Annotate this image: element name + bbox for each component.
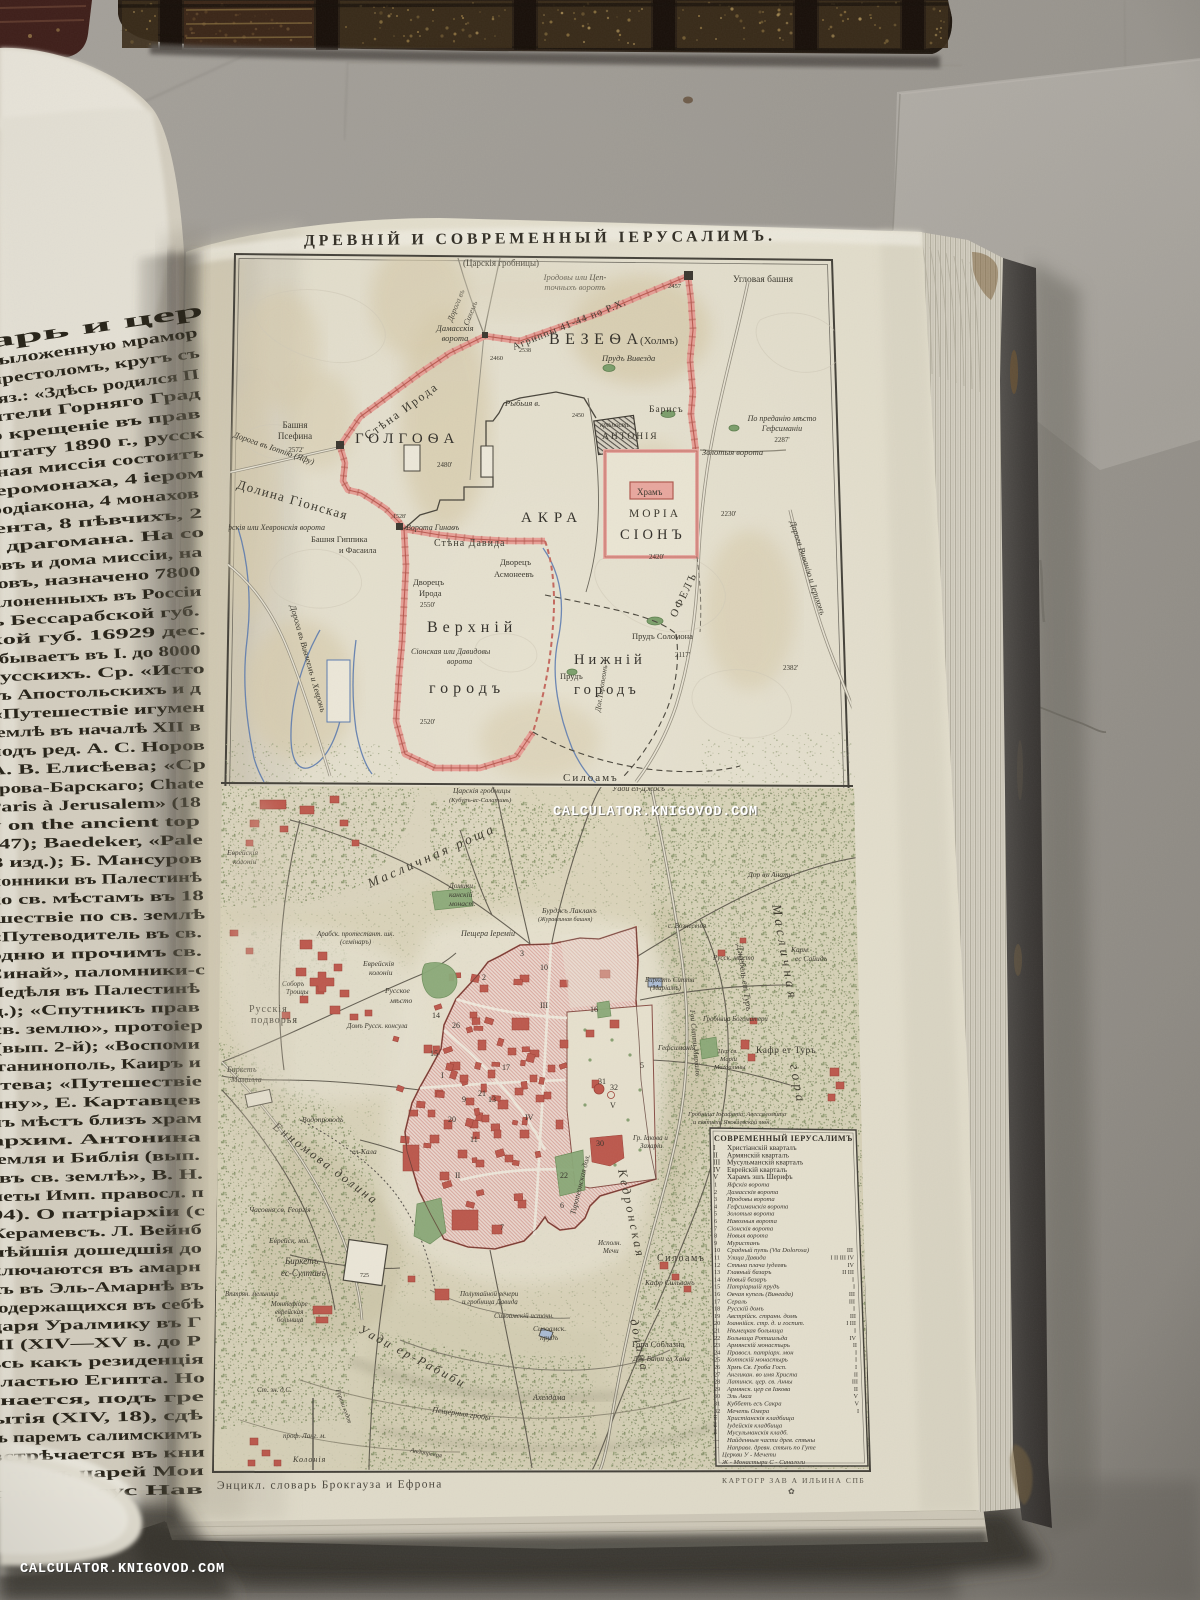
svg-text:CALCULATOR.KNIGOVOD.COM: CALCULATOR.KNIGOVOD.COM <box>20 1562 225 1577</box>
svg-text:CALCULATOR.KNIGOVOD.COM: CALCULATOR.KNIGOVOD.COM <box>553 805 758 820</box>
